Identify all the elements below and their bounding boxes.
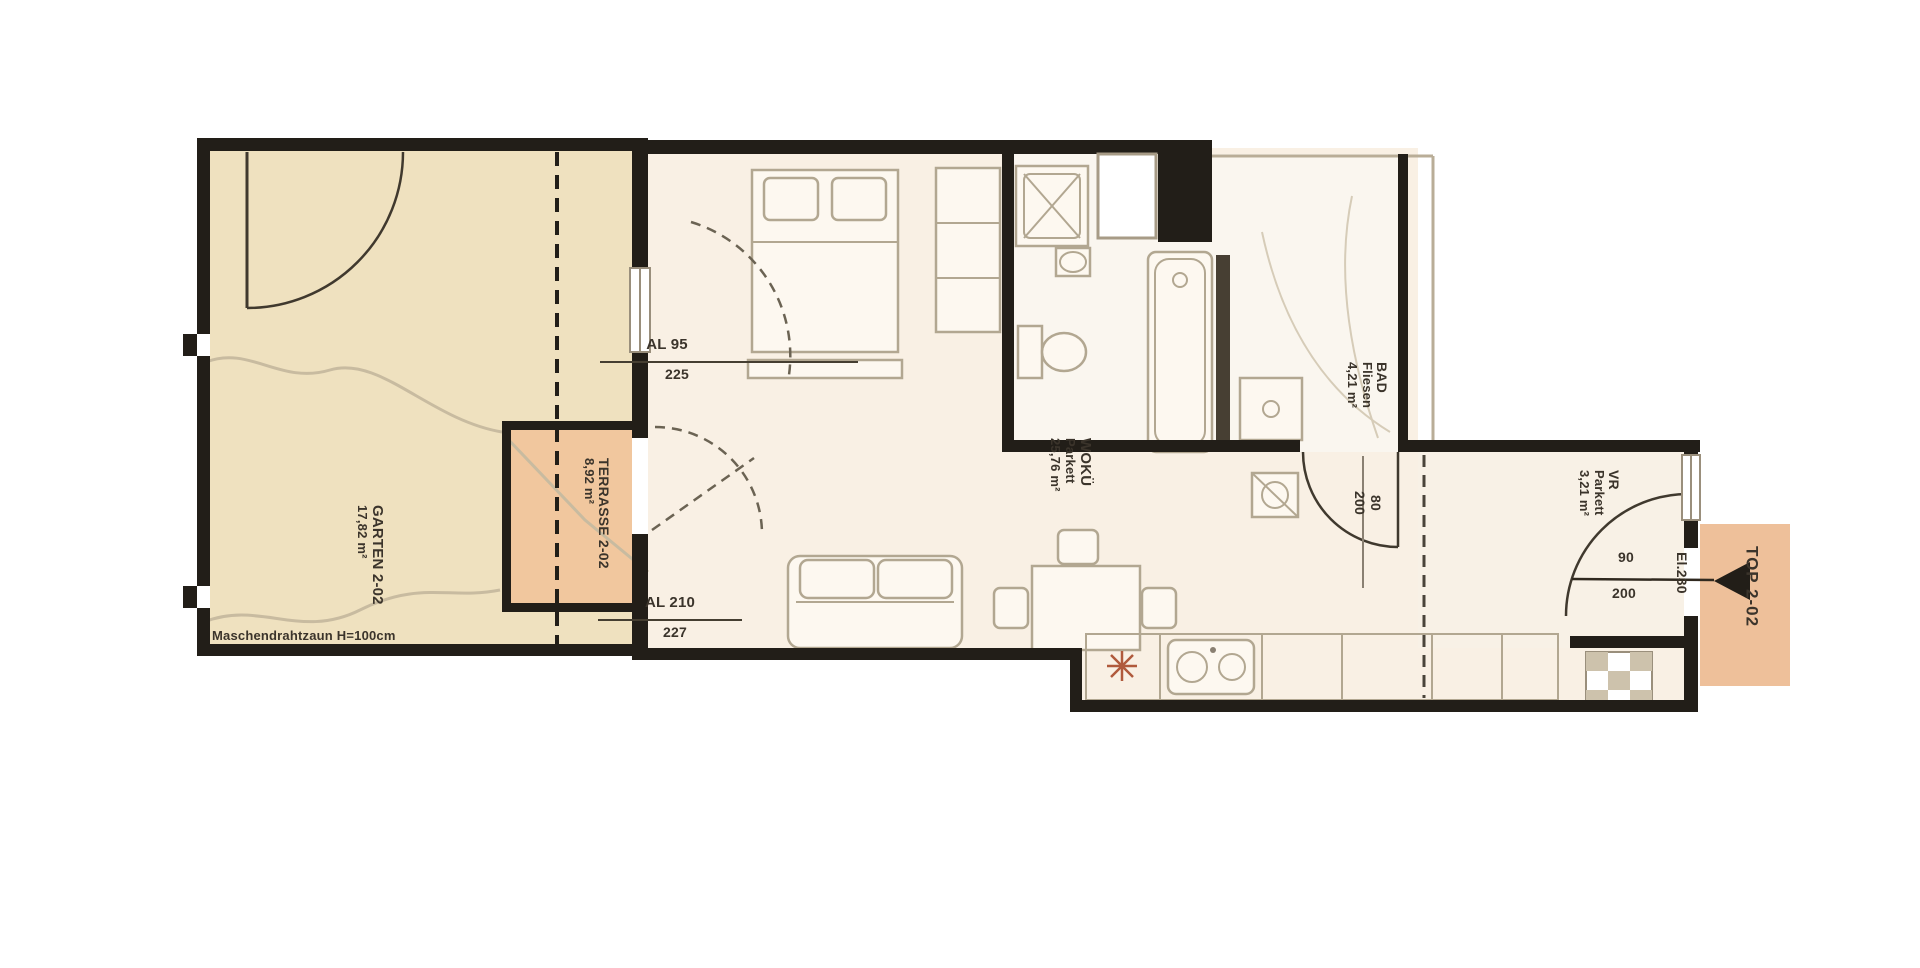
livingroom-area-value: 25,76 m²	[1047, 438, 1062, 623]
bathroom-area-value: 4,21 m²	[1344, 362, 1359, 448]
exterior-wall-left	[632, 140, 648, 268]
garden-label: GARTEN 2-02 17,82 m²	[334, 505, 386, 680]
exterior-wall-left	[632, 352, 648, 438]
dim-200-entry: 200	[1592, 585, 1656, 601]
dim-90: 90	[1598, 549, 1654, 565]
livingroom-floor: Parkett	[1062, 438, 1077, 623]
shaft	[1158, 154, 1212, 242]
bathroom-name: BAD	[1374, 362, 1390, 448]
stove-icon	[1107, 651, 1137, 681]
garden-fence	[197, 644, 637, 656]
exterior-wall-right	[1684, 520, 1698, 548]
entry-pointer-line	[1572, 579, 1714, 580]
fence-gap	[197, 586, 210, 608]
bathtub	[1148, 252, 1212, 452]
toilet-bowl	[1042, 333, 1086, 371]
toilet-tank	[1018, 326, 1042, 378]
gate-post	[183, 586, 197, 608]
garden-top-wall	[197, 138, 648, 151]
floor-plan: GARTEN 2-02 17,82 m² TERRASSE 2-02 8,92 …	[0, 0, 1920, 968]
garden-left-wall	[197, 356, 210, 586]
fence-gap	[197, 334, 210, 356]
terrace-label: TERRASSE 2-02 8,92 m²	[560, 458, 612, 638]
garden-area-value: 17,82 m²	[354, 505, 369, 680]
dim-200-bad: 200	[1352, 468, 1368, 538]
hallway-area-value: 3,21 m²	[1576, 470, 1591, 550]
ventilation-shaft	[1098, 154, 1156, 238]
hallway-floor: Parkett	[1591, 470, 1606, 550]
dim-al95: AL 95	[632, 336, 702, 353]
exterior-wall-bottom	[1070, 700, 1698, 712]
pillow	[764, 178, 818, 220]
faucet	[1210, 647, 1216, 653]
sofa-cushion	[878, 560, 952, 598]
hallway-name: VR	[1606, 470, 1622, 550]
terrace-border	[502, 421, 645, 430]
vr-partition-wall	[1570, 636, 1684, 648]
chair	[1142, 588, 1176, 628]
terrace-area-value: 8,92 m²	[581, 458, 596, 638]
bathroom-label: BAD Fliesen 4,21 m²	[1302, 362, 1390, 448]
unit-label: TOP 2-02	[1742, 546, 1762, 672]
floor-plan-drawing	[0, 0, 1920, 968]
livingroom-name: WOKÜ	[1077, 438, 1094, 623]
exterior-wall-top	[632, 140, 1212, 154]
duct	[1216, 255, 1230, 452]
exterior-wall-right	[1684, 440, 1698, 455]
pillow	[832, 178, 886, 220]
terrace-name: TERRASSE 2-02	[596, 458, 612, 638]
garden-name: GARTEN 2-02	[369, 505, 386, 680]
bathroom-wall-right	[1398, 154, 1408, 452]
livingroom-label: WOKÜ Parkett 25,76 m²	[1014, 438, 1094, 623]
shower-cabin	[1240, 378, 1302, 440]
hallway-label: VR Parkett 3,21 m²	[1542, 470, 1622, 550]
dim-227: 227	[644, 624, 706, 640]
dim-225: 225	[650, 366, 704, 382]
dim-80: 80	[1368, 468, 1384, 538]
garden-left-wall	[197, 138, 210, 334]
wardrobe	[936, 168, 1000, 332]
terrace-border	[502, 421, 511, 612]
bathroom-wall	[1002, 154, 1014, 452]
sofa-cushion	[800, 560, 874, 598]
fence-label: Maschendrahtzaun H=100cm	[212, 629, 396, 644]
bathroom-door-dim: 80 200	[1318, 468, 1384, 538]
gate-post	[183, 334, 197, 356]
entry-height-label: El.230	[1674, 552, 1690, 644]
terrace-door-opening	[632, 438, 648, 534]
bathroom-floor: Fliesen	[1359, 362, 1374, 448]
interior-wall	[1398, 440, 1700, 452]
exterior-wall-bottom	[632, 648, 1082, 660]
dim-al210: AL 210	[630, 594, 710, 611]
